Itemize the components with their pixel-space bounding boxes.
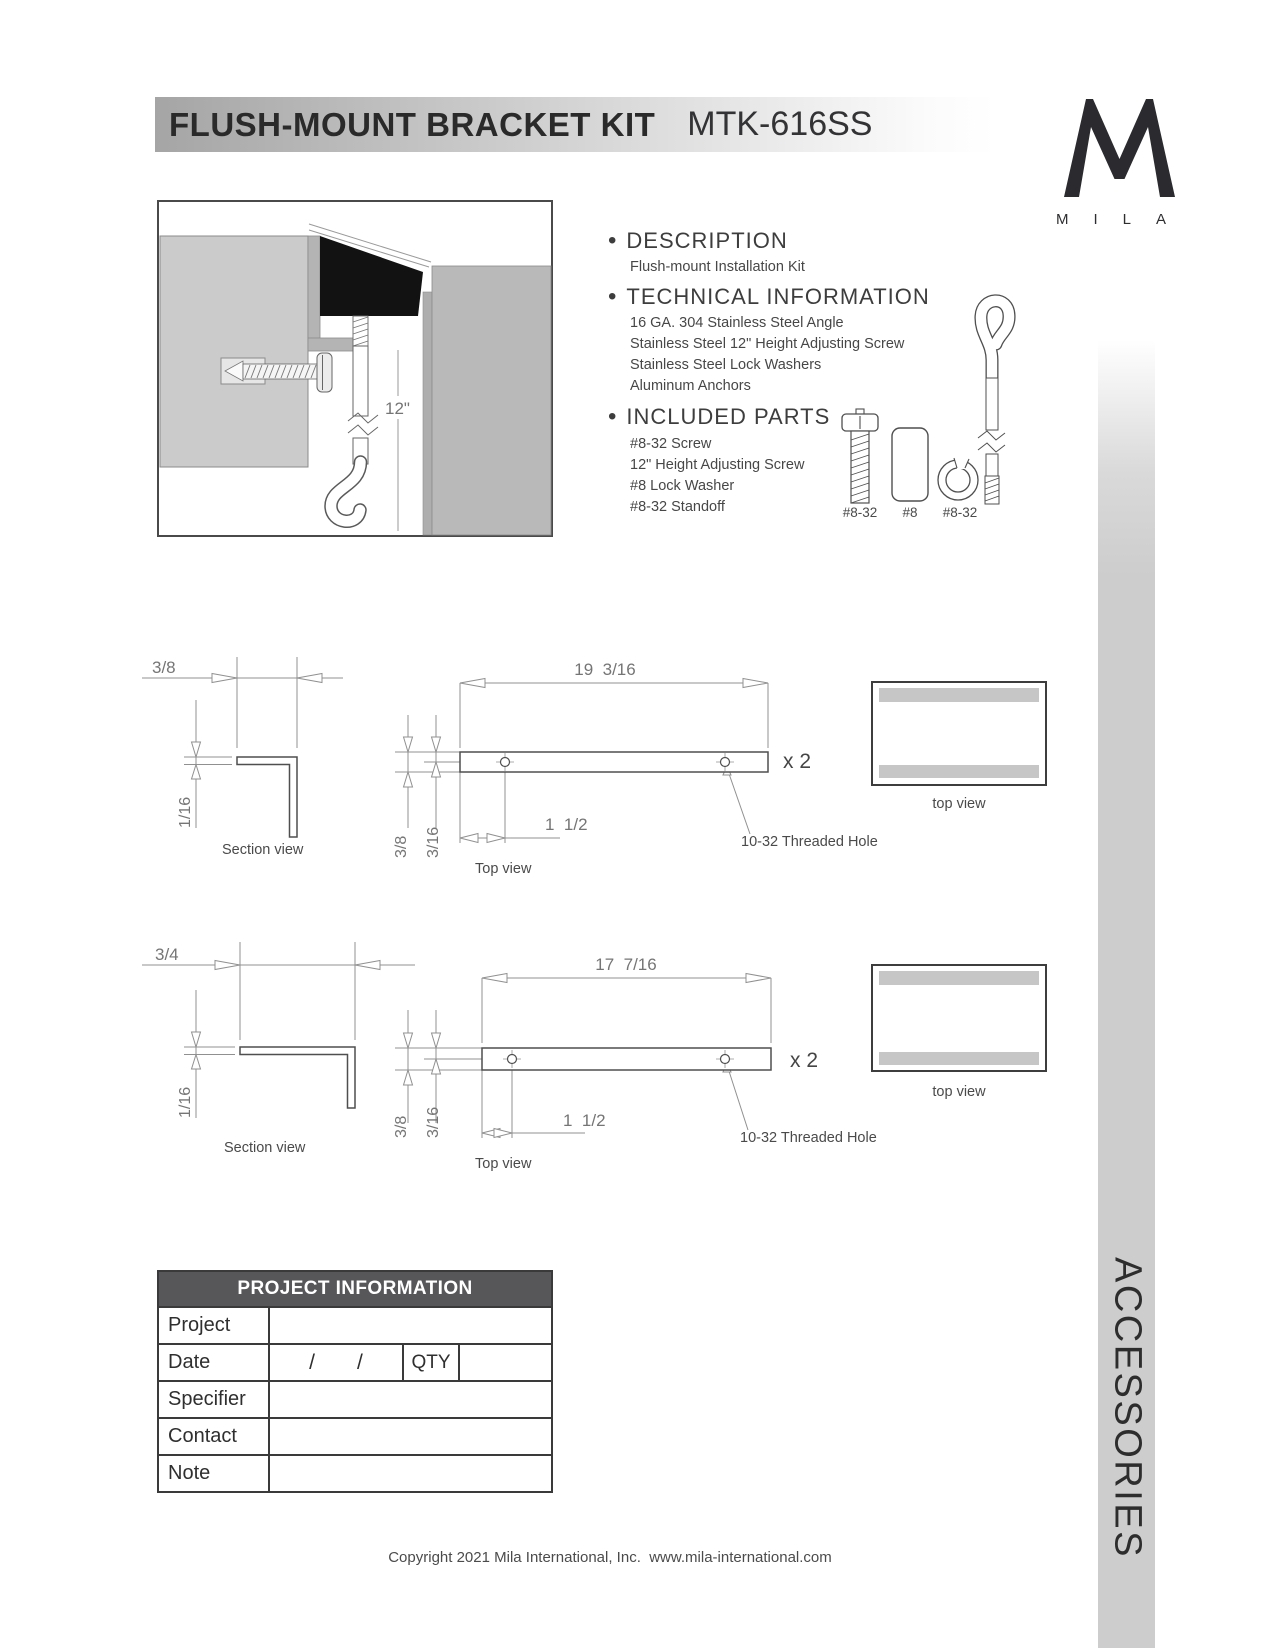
date-value-cell[interactable]: / / xyxy=(270,1345,404,1380)
d1-width-dim: 3/8 xyxy=(152,658,176,677)
included-parts-heading: • INCLUDED PARTS xyxy=(608,404,830,430)
d2-quantity: x 2 xyxy=(790,1049,818,1072)
assembled-top-view-2 xyxy=(872,965,1046,1071)
d1-box-label: top view xyxy=(932,796,986,812)
bracket-drawing-2: 3/4 1/16 Section view 17 xyxy=(140,890,1050,1180)
row-label: Project xyxy=(159,1308,270,1343)
page-title: FLUSH-MOUNT BRACKET KIT xyxy=(169,106,655,144)
row-label: Specifier xyxy=(159,1382,270,1417)
lock-washer-drawing xyxy=(938,457,978,500)
project-value-cell[interactable] xyxy=(270,1308,551,1343)
d2-box-label: top view xyxy=(932,1084,986,1100)
copyright-line: Copyright 2021 Mila International, Inc. … xyxy=(0,1549,1220,1566)
model-number: MTK-616SS xyxy=(687,105,872,144)
installation-diagram: 12" xyxy=(157,200,553,537)
counter-panel xyxy=(423,266,551,535)
included-parts-lines: #8-32 Screw 12" Height Adjusting Screw #… xyxy=(630,434,804,518)
bracket-drawing-1: 3/8 1/16 Section view 19 xyxy=(140,615,1050,880)
mila-logo-m-icon xyxy=(1062,94,1178,202)
included-line: #8 Lock Washer xyxy=(630,476,804,497)
qty-value-cell[interactable] xyxy=(460,1345,551,1380)
project-information-table: PROJECT INFORMATION Project Date / / QTY… xyxy=(157,1270,553,1493)
washer-label: #8-32 xyxy=(943,505,978,520)
table-row-specifier: Specifier xyxy=(159,1380,551,1417)
d1-length-dim: 19 3/16 xyxy=(574,660,635,679)
standoff-label: #8 xyxy=(902,505,917,520)
d2-depth-dim: 3/8 xyxy=(393,1116,410,1138)
assembled-top-view-1 xyxy=(872,682,1046,785)
section-view-1-dims xyxy=(142,657,343,828)
d2-hole-center-dim: 3/16 xyxy=(425,1107,442,1138)
bullet-icon: • xyxy=(608,229,617,253)
d2-top-view-label: Top view xyxy=(475,1156,532,1172)
description-body: Flush-mount Installation Kit xyxy=(630,257,805,278)
included-line: #8-32 Screw xyxy=(630,434,804,455)
break-symbol xyxy=(978,431,1005,452)
note-value-cell[interactable] xyxy=(270,1456,551,1491)
mila-logo-letters: MILA xyxy=(1056,211,1191,228)
d1-depth-dim: 3/8 xyxy=(393,836,410,858)
d2-length-dim: 17 7/16 xyxy=(595,955,656,974)
table-row-note: Note xyxy=(159,1454,551,1491)
d1-top-view-label: Top view xyxy=(475,861,532,877)
d2-hole-callout: 10-32 Threaded Hole xyxy=(740,1130,877,1146)
d1-thickness-dim: 1/16 xyxy=(177,797,194,828)
table-row-project: Project xyxy=(159,1306,551,1343)
spec-sheet-page: FLUSH-MOUNT BRACKET KIT MTK-616SS MILA xyxy=(0,0,1275,1650)
angle-section-1 xyxy=(237,757,297,837)
height-dim-label: 12" xyxy=(385,399,410,418)
row-label: Contact xyxy=(159,1419,270,1454)
parts-drawings: #8-32 #8 #8-32 xyxy=(820,268,1020,523)
adjusting-screw-drawing xyxy=(978,301,1009,504)
table-row-date: Date / / QTY xyxy=(159,1343,551,1380)
d2-hole-offset-dim: 1 1/2 xyxy=(563,1111,606,1130)
d1-quantity: x 2 xyxy=(783,750,811,773)
bullet-icon: • xyxy=(608,405,617,429)
table-title: PROJECT INFORMATION xyxy=(159,1272,551,1306)
d2-section-view-label: Section view xyxy=(224,1140,306,1156)
specifier-value-cell[interactable] xyxy=(270,1382,551,1417)
row-label: Note xyxy=(159,1456,270,1491)
screw-drawing xyxy=(842,409,878,503)
description-heading: • DESCRIPTION xyxy=(608,228,788,254)
category-label: ACCESSORIES xyxy=(1106,1257,1149,1559)
date-slash: / xyxy=(309,1351,315,1375)
mila-m-shape xyxy=(1064,99,1175,197)
d1-section-view-label: Section view xyxy=(222,842,304,858)
qty-label: QTY xyxy=(404,1345,460,1380)
included-line: 12" Height Adjusting Screw xyxy=(630,455,804,476)
screw-label: #8-32 xyxy=(843,505,878,520)
d2-thickness-dim: 1/16 xyxy=(177,1087,194,1118)
row-label: Date xyxy=(159,1345,270,1380)
included-line: #8-32 Standoff xyxy=(630,497,804,518)
d1-hole-center-dim: 3/16 xyxy=(425,827,442,858)
angle-section-2 xyxy=(240,1047,355,1108)
contact-value-cell[interactable] xyxy=(270,1419,551,1454)
bullet-icon: • xyxy=(608,285,617,309)
d2-width-dim: 3/4 xyxy=(155,945,179,964)
standoff-drawing xyxy=(892,428,928,501)
d1-hole-callout: 10-32 Threaded Hole xyxy=(741,834,878,850)
date-slash: / xyxy=(357,1351,363,1375)
table-row-contact: Contact xyxy=(159,1417,551,1454)
title-bar: FLUSH-MOUNT BRACKET KIT MTK-616SS xyxy=(155,97,995,152)
d1-hole-offset-dim: 1 1/2 xyxy=(545,815,588,834)
